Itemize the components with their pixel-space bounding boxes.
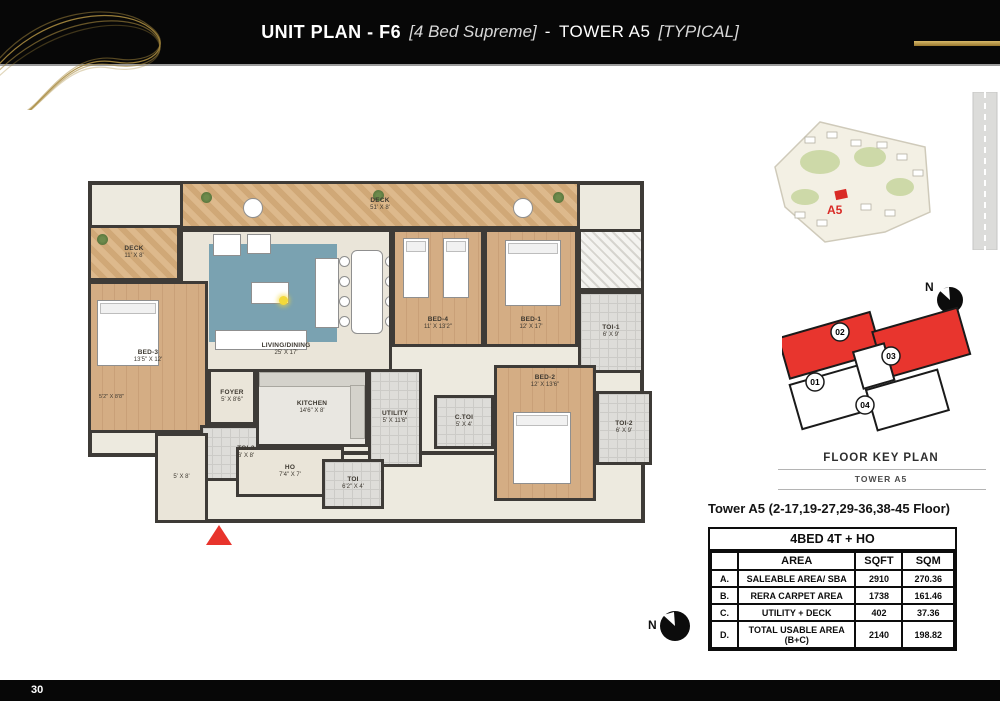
north-label: N: [648, 618, 657, 632]
room-label: LIVING/DINING: [262, 342, 311, 350]
dining-chair: [385, 276, 392, 287]
room-dims: 13'5" X 12': [134, 357, 162, 365]
room-dims: 11' X 13'2": [424, 324, 452, 332]
table-row: C. UTILITY + DECK 402 37.36: [711, 604, 954, 621]
room-deck-main: DECK 51' X 8': [180, 181, 580, 229]
room-label: TOI-3: [237, 445, 255, 453]
unit-01-number: 01: [810, 377, 820, 387]
room-dims: 5' X 8': [173, 474, 189, 482]
title-bed-type: [4 Bed Supreme]: [409, 22, 537, 42]
room-dims: 5' X 8'6": [221, 397, 243, 405]
room-dims: 12' X 13'6": [531, 382, 559, 390]
room-dims: 25' X 17': [275, 350, 298, 358]
room-dims: 51' X 8': [370, 205, 390, 213]
unit-03-number: 03: [886, 351, 896, 361]
armchair: [213, 234, 241, 256]
north-label: N: [925, 280, 934, 294]
room-label: HO: [285, 464, 295, 472]
room-dims: 6'2" X 4': [342, 484, 364, 492]
room-label: DECK: [124, 245, 143, 253]
room-dims: 7'4" X 7': [279, 472, 301, 480]
col-sqm: SQM: [902, 552, 954, 570]
header-bar: UNIT PLAN - F6 [4 Bed Supreme] - TOWER A…: [0, 0, 1000, 66]
single-bed: [443, 238, 469, 298]
title-unit-plan: UNIT PLAN - F6: [261, 22, 401, 43]
room-kitchen: KITCHEN 14'6" X 8': [256, 369, 368, 447]
dining-chair: [385, 316, 392, 327]
kitchen-counter: [350, 385, 365, 439]
room-toi-powder: TOI 6'2" X 4': [322, 459, 384, 509]
dining-chair: [385, 296, 392, 307]
room-label: BED-4: [428, 316, 449, 324]
unit-02-number: 02: [835, 327, 845, 337]
dining-chair: [339, 316, 350, 327]
area-table: 4BED 4T + HO AREA SQFT SQM A. SALEABLE A…: [708, 527, 957, 651]
room-label: FOYER: [220, 389, 243, 397]
dining-chair: [339, 296, 350, 307]
room-toi-2: TOI-2 6' X 9': [596, 391, 652, 465]
title-tower: TOWER A5: [559, 22, 651, 42]
table-title: 4BED 4T + HO: [710, 529, 955, 551]
plant-icon: [97, 234, 108, 245]
table-row: A. SALEABLE AREA/ SBA 2910 270.36: [711, 570, 954, 587]
room-dims: 14'6" X 8': [299, 408, 324, 416]
sofa: [315, 258, 339, 328]
footer-bar: 30: [0, 680, 1000, 701]
floor-plan: DECK 51' X 8' DECK 11' X 8' LIVING/DININ…: [80, 165, 665, 545]
single-bed: [403, 238, 429, 298]
page-number: 30: [31, 684, 43, 696]
room-dims: 5' X 4': [456, 422, 472, 430]
room-label: TOI: [347, 476, 358, 484]
room-label: BED-3: [138, 349, 159, 357]
col-blank: [711, 552, 738, 570]
room-bed-1: BED-1 12' X 17': [484, 229, 578, 347]
gold-bar-decoration: [914, 41, 1000, 46]
dining-table: [351, 250, 383, 334]
wardrobe-area: [578, 229, 644, 291]
table-row: D. TOTAL USABLE AREA (B+C) 2140 198.82: [711, 621, 954, 648]
room-c-toi: C.TOI 5' X 4': [434, 395, 494, 449]
room-dims: 5' X 11'6": [383, 418, 408, 426]
room-label: BED-1: [521, 316, 542, 324]
armchair: [247, 234, 271, 254]
floor-key-plan-subtitle: TOWER A5: [770, 474, 992, 484]
deck-table: [243, 198, 263, 218]
table-row: B. RERA CARPET AREA 1738 161.46: [711, 587, 954, 604]
room-dims: 6' X 8': [238, 453, 254, 461]
double-bed: [513, 412, 571, 484]
entrance-arrow: [206, 525, 232, 545]
unit-04-number: 04: [860, 400, 870, 410]
room-label: TOI-2: [615, 420, 633, 428]
room-toi-1: TOI-1 6' X 9': [578, 291, 644, 373]
room-dims: 6' X 9': [616, 428, 632, 436]
room-label: C.TOI: [455, 414, 473, 422]
room-deck-bed3: DECK 11' X 8': [88, 225, 180, 281]
room-bed-4: BED-4 11' X 13'2": [392, 229, 484, 347]
double-bed: [505, 240, 561, 306]
dining-chair: [339, 256, 350, 267]
room-living-dining: LIVING/DINING 25' X 17': [180, 229, 392, 373]
room-foyer: FOYER 5' X 8'6": [208, 369, 256, 425]
compass-icon: [659, 610, 691, 642]
compass-north-bottom: N: [648, 610, 691, 642]
room-label: DECK: [370, 197, 389, 205]
entry-passage: 5' X 8': [155, 433, 208, 523]
plant-icon: [553, 192, 564, 203]
dresser-dims: 5'2" X 8'8": [99, 394, 124, 400]
room-bed-3: BED-3 13'5" X 12' 5'2" X 8'8": [88, 281, 208, 433]
room-dims: 11' X 8': [124, 253, 143, 261]
room-label: UTILITY: [382, 410, 408, 418]
room-label: BED-2: [535, 374, 556, 382]
table-header-row: AREA SQFT SQM: [711, 552, 954, 570]
divider-line: [778, 469, 986, 470]
page-title: UNIT PLAN - F6 [4 Bed Supreme] - TOWER A…: [0, 0, 1000, 64]
col-sqft: SQFT: [855, 552, 902, 570]
room-dims: 6' X 9': [603, 332, 619, 340]
room-label: KITCHEN: [297, 400, 327, 408]
floor-key-plan-diagram: 02 03 01 04: [782, 293, 992, 453]
tower-a5-map-label: A5: [827, 203, 843, 217]
dining-chair: [339, 276, 350, 287]
dining-chair: [385, 256, 392, 267]
title-dash: -: [545, 22, 551, 42]
floor-key-plan-title: FLOOR KEY PLAN: [770, 452, 992, 464]
room-utility: UTILITY 5' X 11'6": [368, 369, 422, 467]
col-area: AREA: [738, 552, 856, 570]
master-plan-map: A5: [765, 92, 1000, 250]
room-dims: 12' X 17': [520, 324, 543, 332]
lamp-dot: [279, 296, 288, 305]
plant-icon: [201, 192, 212, 203]
tower-floors-caption: Tower A5 (2-17,19-27,29-36,38-45 Floor): [698, 501, 960, 516]
room-bed-2: BED-2 12' X 13'6": [494, 365, 596, 501]
title-typical: [TYPICAL]: [658, 22, 738, 42]
room-label: TOI-1: [602, 324, 620, 332]
deck-table: [513, 198, 533, 218]
divider-line: [778, 489, 986, 490]
